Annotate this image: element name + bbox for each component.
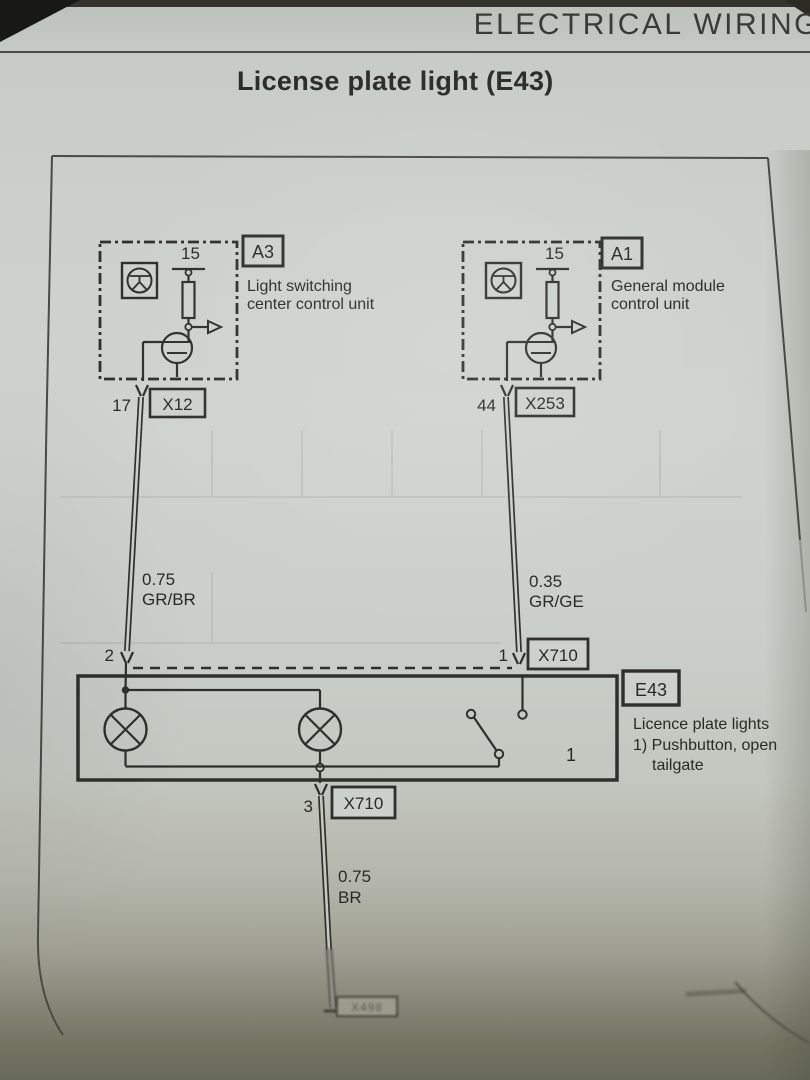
pushbutton-switch-symbol [467, 677, 527, 758]
connector-x498-box: X498 [337, 997, 397, 1016]
wire-right-gauge: 0.35 [529, 572, 562, 591]
signal-output-arrow-icon [192, 321, 221, 333]
pin-connector-fork-icon [121, 652, 133, 663]
control-logic-icon [122, 263, 157, 298]
switch-footnote-ref: 1 [566, 745, 576, 765]
pin-44-label: 44 [477, 396, 496, 415]
connector-x253-box: X253 [516, 388, 574, 416]
component-e43-footnote-2: tailgate [652, 757, 704, 774]
wire-left-color: GR/BR [142, 590, 196, 609]
wire-right-feed [506, 397, 519, 652]
component-e43-id: E43 [635, 680, 667, 700]
wire-ground [321, 796, 329, 950]
connector-x710-right-label: X710 [538, 646, 578, 665]
resistor-icon [547, 282, 559, 318]
pin-17-label: 17 [112, 396, 131, 415]
transistor-icon [507, 330, 556, 381]
module-a3-id: A3 [252, 242, 274, 262]
page-curl-zone: X498 [324, 948, 809, 1043]
signal-output-arrow-icon [556, 321, 585, 333]
module-a1-id-box: A1 [602, 238, 642, 268]
connector-x253-label: X253 [525, 394, 565, 413]
lamp-icon-left [105, 693, 147, 766]
module-a1-id: A1 [611, 244, 633, 264]
module-a1-name-2: control unit [611, 296, 690, 313]
module-a3-dashed-outline [100, 242, 237, 379]
pin-connector-fork-icon [136, 385, 148, 396]
pin-2-label: 2 [105, 646, 114, 665]
module-a3 [100, 242, 237, 396]
connector-x710-bottom-label: X710 [344, 794, 384, 813]
module-a1-name-1: General module [611, 278, 725, 295]
wire-left-feed [127, 397, 141, 651]
print-through-lines [60, 430, 742, 643]
pin-connector-fork-icon [513, 653, 525, 664]
wiring-diagram: 15 A3 Light switching center control uni… [0, 0, 810, 1080]
module-a3-id-box: A3 [243, 236, 283, 266]
connector-x12-box: X12 [150, 389, 205, 417]
connector-x498-label: X498 [351, 1001, 383, 1015]
pin-3-label: 3 [304, 797, 313, 816]
connector-x710-right-box: X710 [528, 639, 588, 669]
wire-right-color: GR/GE [529, 592, 584, 611]
lamp-icon-right [299, 709, 341, 764]
component-e43 [78, 663, 617, 783]
terminal-15-feed [172, 269, 205, 282]
lamp-return-wire [126, 759, 500, 767]
wire-left-gauge: 0.75 [142, 570, 175, 589]
page-edge-curve [735, 982, 809, 1043]
connector-x710-bottom-box: X710 [332, 787, 395, 818]
terminal-15-label-left: 15 [181, 244, 200, 263]
pin-1-label: 1 [499, 646, 508, 665]
component-e43-outline [78, 676, 617, 780]
component-e43-footnote-1: 1) Pushbutton, open [633, 737, 777, 754]
module-a3-name-1: Light switching [247, 278, 352, 295]
wire-ground-gauge: 0.75 [338, 867, 371, 886]
connector-x12-label: X12 [162, 395, 192, 414]
control-logic-icon [486, 263, 521, 298]
wire-ground-color: BR [338, 888, 362, 907]
resistor-icon [183, 282, 195, 318]
transistor-icon [143, 330, 192, 381]
component-e43-id-box: E43 [623, 671, 679, 705]
module-a3-name-2: center control unit [247, 296, 375, 313]
pin-connector-fork-icon [315, 784, 327, 795]
module-a1 [463, 242, 600, 396]
component-e43-name: Licence plate lights [633, 716, 769, 733]
terminal-15-feed [536, 269, 569, 282]
fine-print-smudge [686, 988, 746, 996]
terminal-15-label-right: 15 [545, 244, 564, 263]
pin-connector-fork-icon [501, 385, 513, 396]
